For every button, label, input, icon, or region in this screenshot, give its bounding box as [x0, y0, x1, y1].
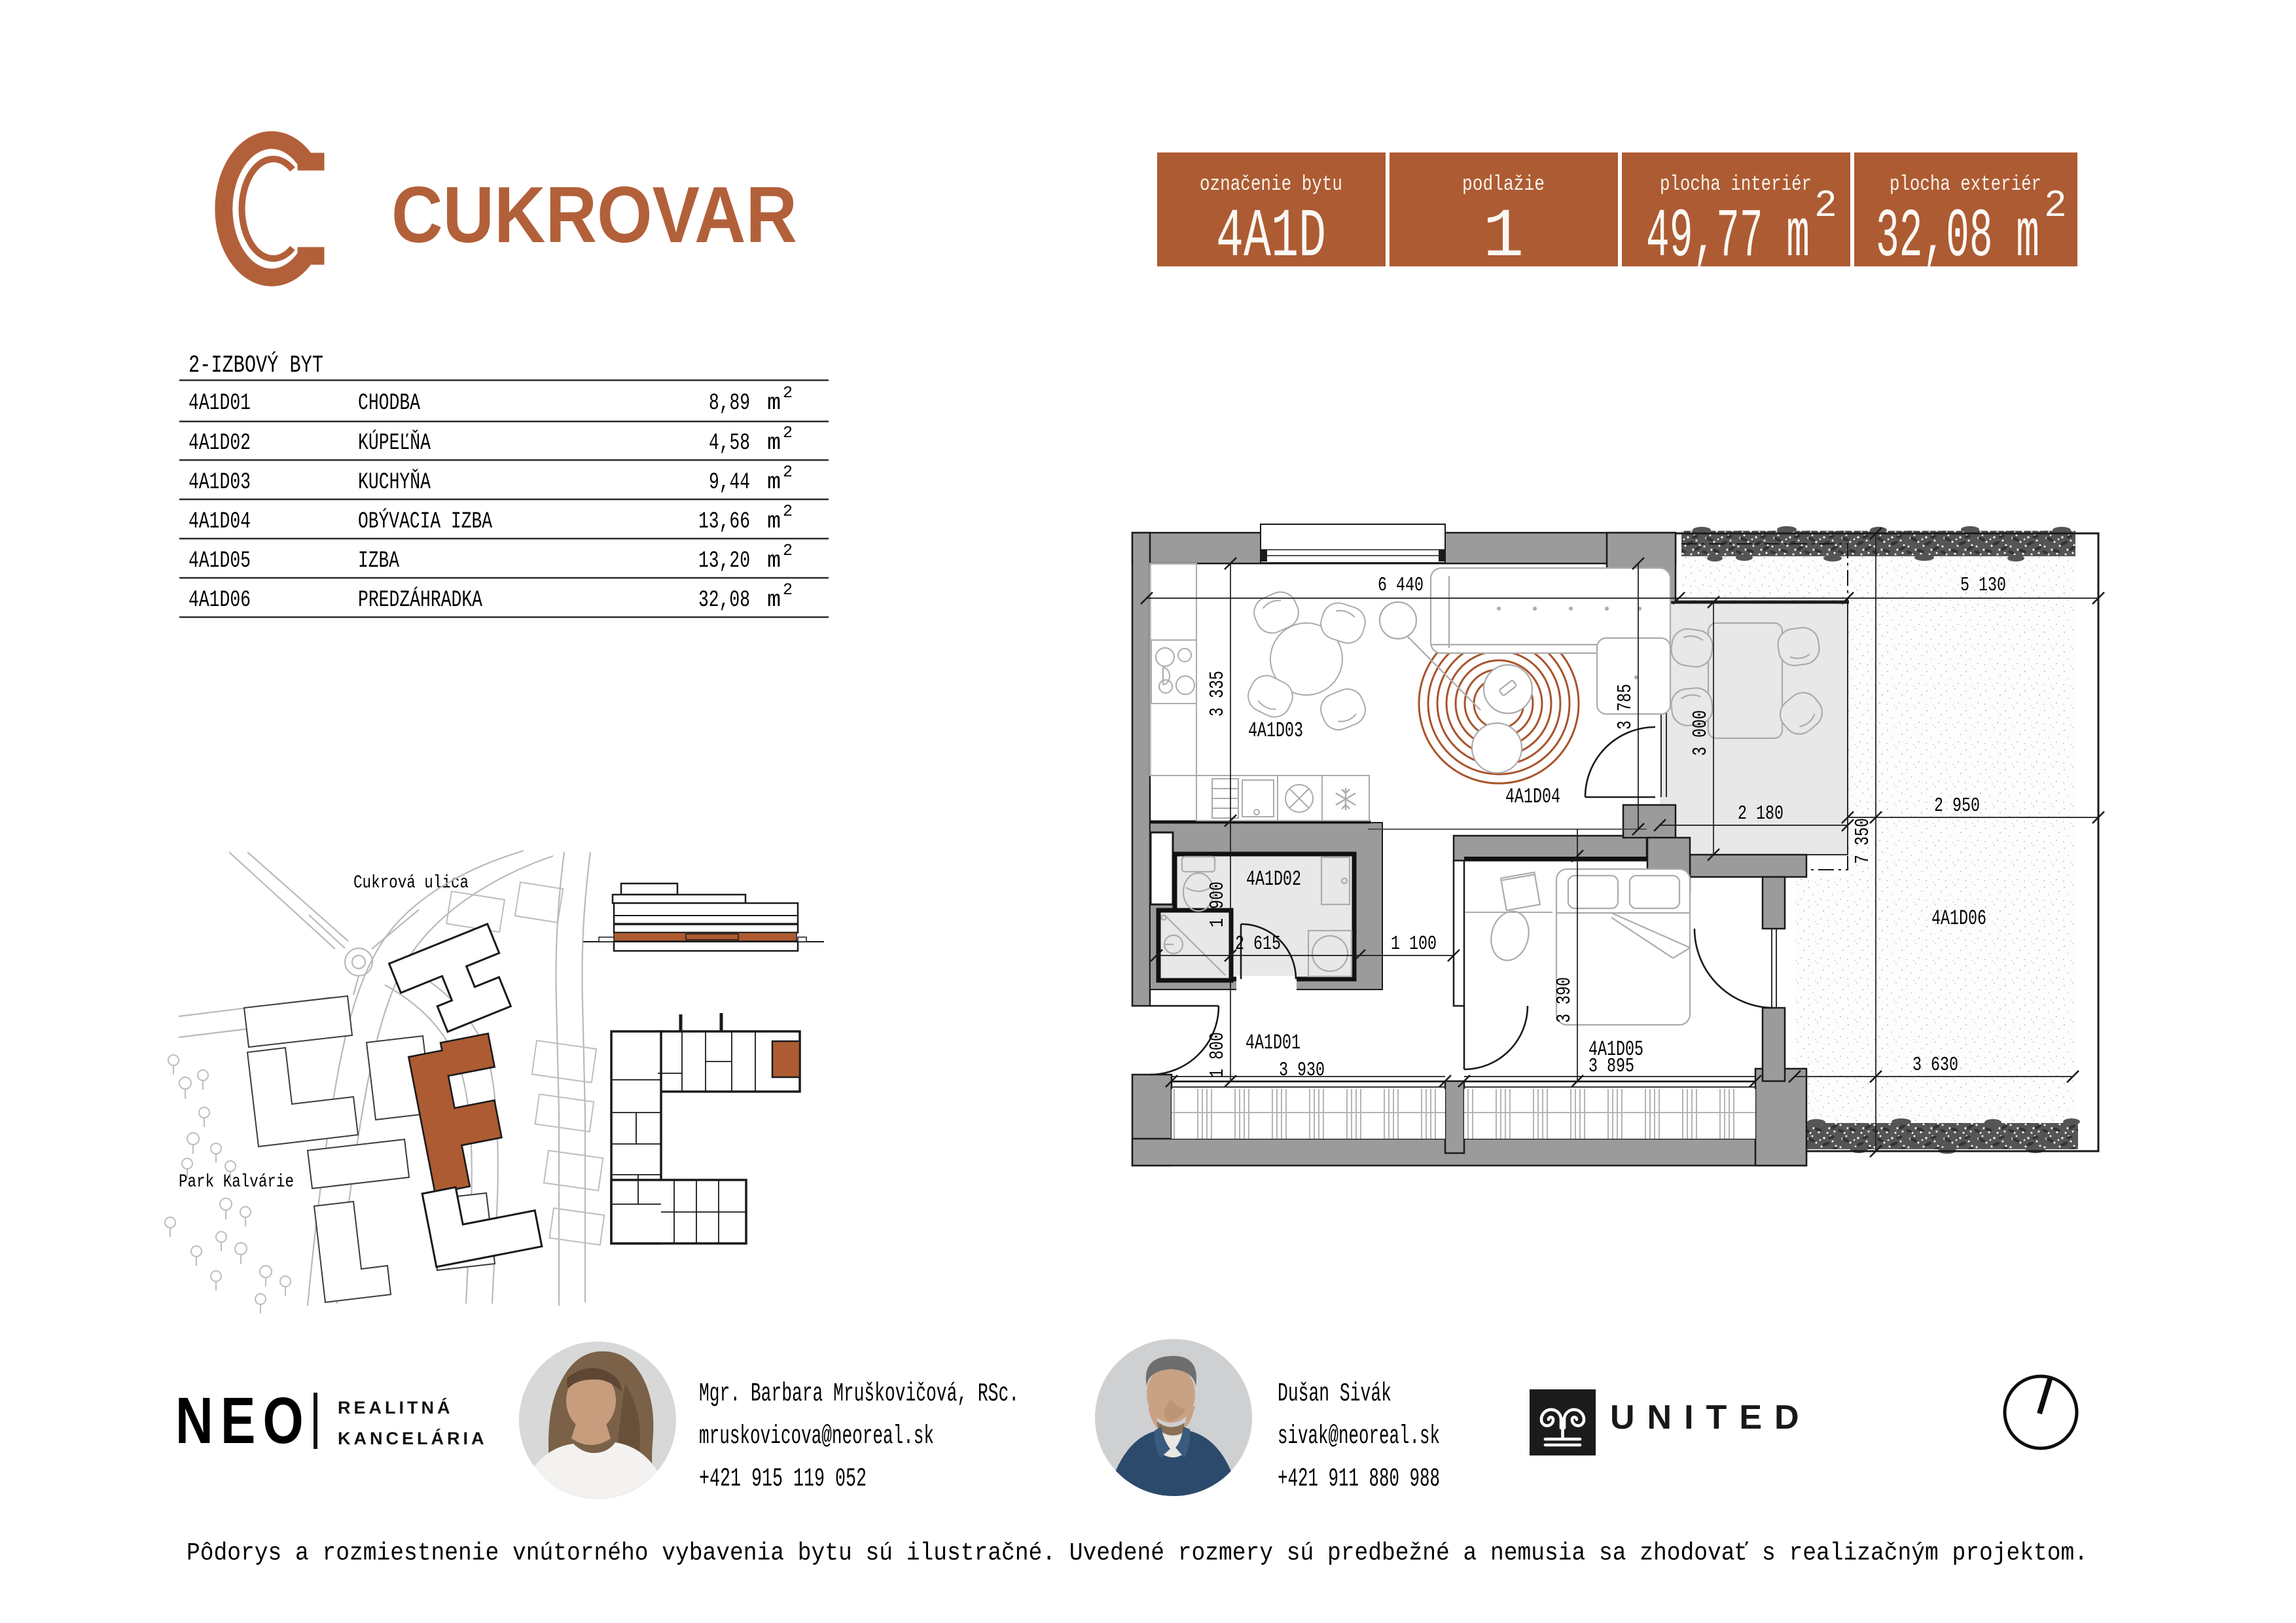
- svg-text:2 615: 2 615: [1235, 933, 1281, 955]
- svg-text:2: 2: [783, 463, 793, 482]
- svg-text:4A1D06: 4A1D06: [1931, 906, 1986, 931]
- svg-text:+421 915 119 052: +421 915 119 052: [699, 1465, 867, 1494]
- svg-text:NEO: NEO: [175, 1385, 311, 1458]
- svg-text:PREDZÁHRADKA: PREDZÁHRADKA: [358, 586, 482, 613]
- svg-text:4A1D06: 4A1D06: [188, 587, 251, 613]
- svg-text:2: 2: [783, 423, 793, 442]
- svg-text:Mgr. Barbara Mruškovičová, RSc: Mgr. Barbara Mruškovičová, RSc.: [699, 1380, 1019, 1409]
- svg-text:1 100: 1 100: [1391, 933, 1437, 955]
- svg-text:označenie bytu: označenie bytu: [1200, 172, 1342, 196]
- svg-text:Pôdorys a rozmiestnenie vnútor: Pôdorys a rozmiestnenie vnútorného vybav…: [187, 1539, 2088, 1567]
- svg-text:CHODBA: CHODBA: [358, 390, 420, 416]
- svg-text:3 000: 3 000: [1689, 710, 1712, 756]
- svg-text:2: 2: [783, 502, 793, 521]
- svg-text:m: m: [767, 469, 781, 495]
- svg-text:KÚPEĽŇA: KÚPEĽŇA: [358, 429, 431, 456]
- svg-text:2: 2: [783, 580, 793, 599]
- svg-text:3 785: 3 785: [1614, 684, 1637, 730]
- svg-text:4A1D04: 4A1D04: [188, 508, 251, 535]
- svg-text:4A1D02: 4A1D02: [1246, 867, 1301, 891]
- svg-text:4A1D01: 4A1D01: [188, 390, 251, 416]
- svg-text:m: m: [767, 430, 781, 456]
- svg-text:2: 2: [783, 541, 793, 560]
- svg-text:2: 2: [783, 383, 793, 402]
- svg-text:4A1D04: 4A1D04: [1505, 785, 1560, 809]
- svg-text:1 900: 1 900: [1206, 882, 1229, 927]
- svg-text:Park Kalvárie: Park Kalvárie: [179, 1172, 294, 1192]
- svg-text:6 440: 6 440: [1378, 574, 1424, 597]
- svg-text:2: 2: [2044, 185, 2067, 228]
- svg-text:4A1D05: 4A1D05: [188, 548, 251, 574]
- svg-text:4A1D03: 4A1D03: [188, 469, 251, 495]
- svg-text:4A1D03: 4A1D03: [1248, 719, 1303, 743]
- svg-text:13,20: 13,20: [698, 548, 750, 574]
- svg-text:5 130: 5 130: [1960, 574, 2006, 597]
- svg-text:m: m: [767, 390, 781, 416]
- svg-text:13,66: 13,66: [698, 508, 750, 535]
- svg-text:49,77 m: 49,77 m: [1646, 198, 1810, 276]
- svg-text:4A1D01: 4A1D01: [1246, 1031, 1300, 1055]
- svg-text:2: 2: [1814, 185, 1837, 228]
- svg-text:1: 1: [1482, 198, 1524, 276]
- svg-text:m: m: [767, 587, 781, 613]
- svg-text:IZBA: IZBA: [358, 548, 399, 574]
- svg-text:plocha interiér: plocha interiér: [1660, 172, 1812, 196]
- svg-text:7 350: 7 350: [1852, 818, 1874, 864]
- svg-text:2-IZBOVÝ BYT: 2-IZBOVÝ BYT: [188, 351, 323, 380]
- svg-text:3 390: 3 390: [1553, 977, 1576, 1023]
- svg-text:4,58: 4,58: [709, 430, 750, 456]
- svg-text:32,08: 32,08: [698, 587, 750, 613]
- svg-text:KANCELÁRIA: KANCELÁRIA: [338, 1428, 488, 1448]
- svg-text:4A1D02: 4A1D02: [188, 430, 251, 456]
- svg-text:REALITNÁ: REALITNÁ: [338, 1397, 454, 1418]
- svg-text:1 800: 1 800: [1206, 1032, 1229, 1078]
- svg-text:8,89: 8,89: [709, 390, 750, 416]
- svg-text:Cukrová ulica: Cukrová ulica: [353, 873, 469, 893]
- svg-text:UNITED: UNITED: [1610, 1399, 1812, 1436]
- svg-text:Dušan Sivák: Dušan Sivák: [1278, 1380, 1391, 1409]
- svg-text:4A1D: 4A1D: [1216, 198, 1326, 276]
- svg-text:2 180: 2 180: [1738, 802, 1784, 825]
- svg-text:m: m: [767, 508, 781, 535]
- svg-text:3 930: 3 930: [1279, 1059, 1325, 1082]
- svg-text:4A1D05: 4A1D05: [1588, 1037, 1643, 1061]
- svg-text:mruskovicova@neoreal.sk: mruskovicova@neoreal.sk: [699, 1422, 934, 1452]
- svg-text:+421 911 880 988: +421 911 880 988: [1278, 1465, 1440, 1494]
- svg-text:KUCHYŇA: KUCHYŇA: [358, 469, 431, 495]
- svg-text:3 630: 3 630: [1912, 1054, 1958, 1077]
- svg-text:CUKROVAR: CUKROVAR: [391, 170, 797, 259]
- svg-text:3 335: 3 335: [1206, 671, 1229, 717]
- svg-text:podlažie: podlažie: [1462, 172, 1545, 196]
- svg-text:sivak@neoreal.sk: sivak@neoreal.sk: [1278, 1422, 1440, 1452]
- svg-text:2 950: 2 950: [1934, 794, 1980, 817]
- svg-text:32,08 m: 32,08 m: [1876, 198, 2039, 276]
- svg-text:m: m: [767, 548, 781, 574]
- svg-text:OBÝVACIA IZBA: OBÝVACIA IZBA: [358, 508, 492, 535]
- svg-text:plocha exteriér: plocha exteriér: [1890, 172, 2041, 196]
- svg-text:9,44: 9,44: [709, 469, 750, 495]
